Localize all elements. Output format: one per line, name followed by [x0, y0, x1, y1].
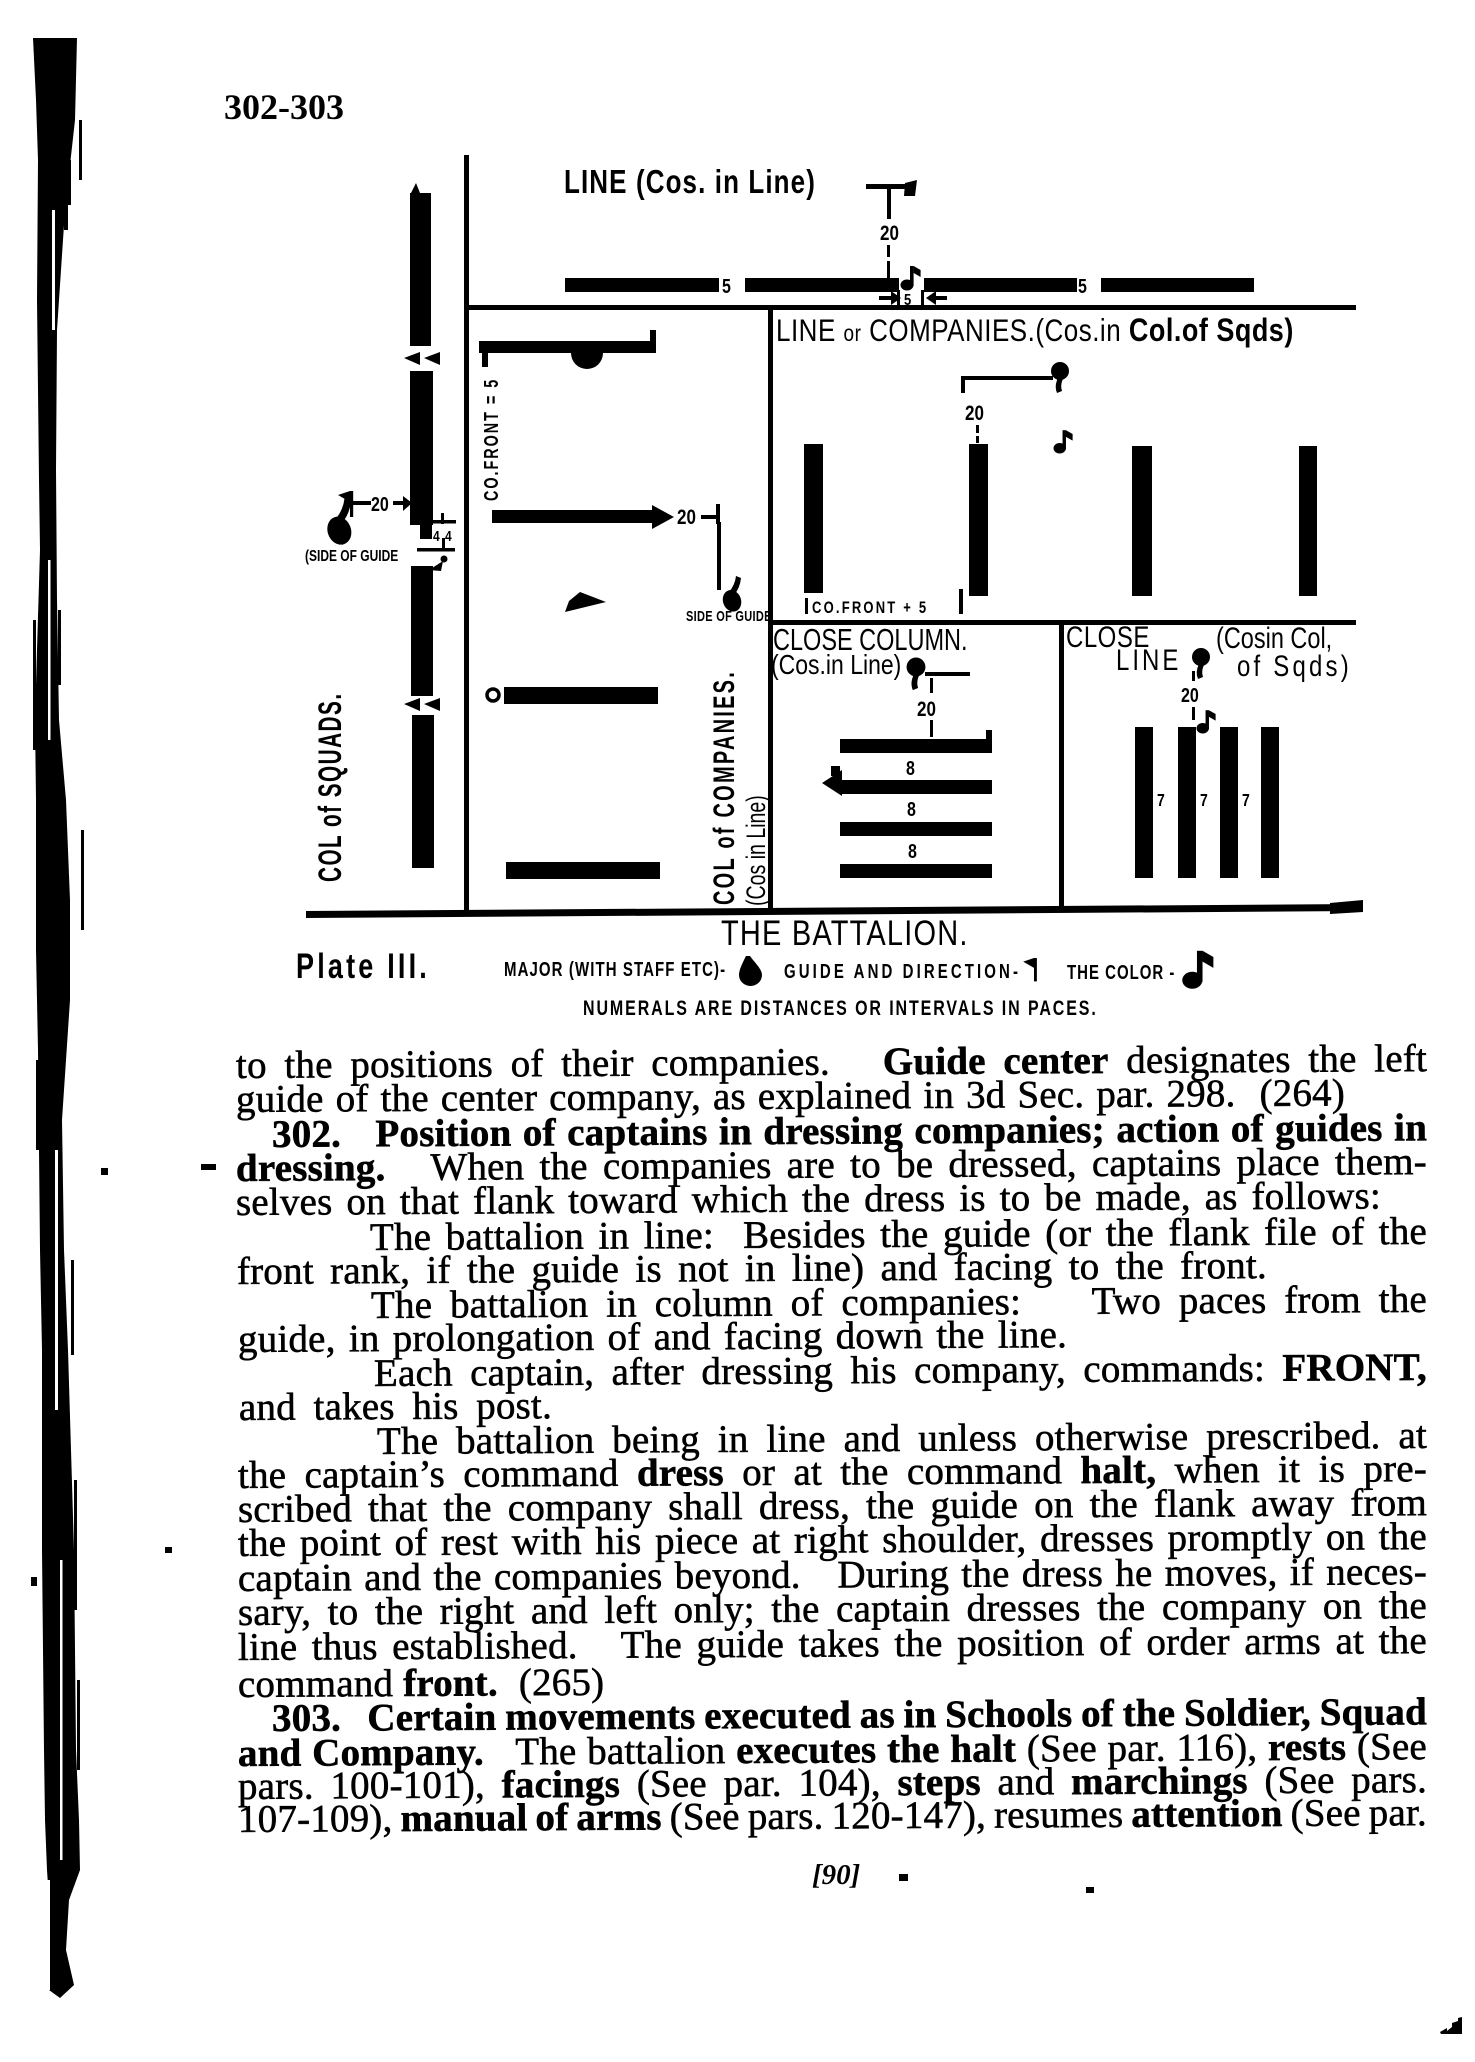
svg-text:NUMERALS ARE DISTANCES OR INTE: NUMERALS ARE DISTANCES OR INTERVALS IN P… [583, 997, 1098, 1021]
svg-text:8: 8 [907, 798, 916, 820]
svg-text:CO.FRONT + 5: CO.FRONT + 5 [812, 600, 928, 618]
svg-text:COL of COMPANIES.: COL of COMPANIES. [708, 670, 741, 905]
svg-text:7: 7 [1157, 792, 1165, 811]
svg-text:20: 20 [917, 698, 936, 721]
svg-text:SIDE OF GUIDE: SIDE OF GUIDE [686, 608, 772, 625]
svg-text:20: 20 [965, 402, 984, 425]
svg-text:THE COLOR -: THE COLOR - [1067, 961, 1175, 984]
svg-text:20: 20 [677, 506, 696, 529]
svg-text:MAJOR (WITH STAFF ETC)-: MAJOR (WITH STAFF ETC)- [504, 958, 726, 981]
svg-text:5: 5 [904, 292, 911, 309]
svg-text:GUIDE AND DIRECTION-: GUIDE AND DIRECTION- [784, 960, 1021, 983]
svg-text:5: 5 [722, 275, 731, 297]
svg-text:8: 8 [906, 757, 915, 779]
svg-text:(SIDE OF GUIDE: (SIDE OF GUIDE [305, 546, 398, 564]
svg-text:20: 20 [371, 493, 389, 515]
svg-text:(Cos in Line): (Cos in Line) [741, 795, 771, 906]
svg-text:COL of SQUADS.: COL of SQUADS. [311, 692, 348, 882]
svg-text:CO.FRONT = 5: CO.FRONT = 5 [480, 378, 503, 501]
svg-text:LINE (Cos. in Line): LINE (Cos. in Line) [564, 164, 816, 201]
svg-text:20: 20 [880, 222, 899, 245]
svg-text:of Sqds): of Sqds) [1237, 648, 1352, 682]
svg-text:7: 7 [1242, 792, 1250, 811]
svg-text:5: 5 [1078, 275, 1087, 297]
svg-text:THE BATTALION.: THE BATTALION. [721, 913, 969, 952]
svg-text:Plate III.: Plate III. [296, 947, 430, 986]
svg-text:4: 4 [433, 528, 440, 544]
svg-text:4: 4 [445, 528, 452, 544]
svg-text:20: 20 [1181, 684, 1199, 706]
svg-text:(Cos.in Line): (Cos.in Line) [771, 650, 901, 680]
svg-text:7: 7 [1200, 792, 1208, 811]
svg-text:LINE: LINE [1116, 642, 1181, 676]
svg-text:8: 8 [908, 840, 917, 862]
svg-text:LINE or COMPANIES.(Cos.in Col.: LINE or COMPANIES.(Cos.in Col.of Sqds) [776, 313, 1294, 349]
